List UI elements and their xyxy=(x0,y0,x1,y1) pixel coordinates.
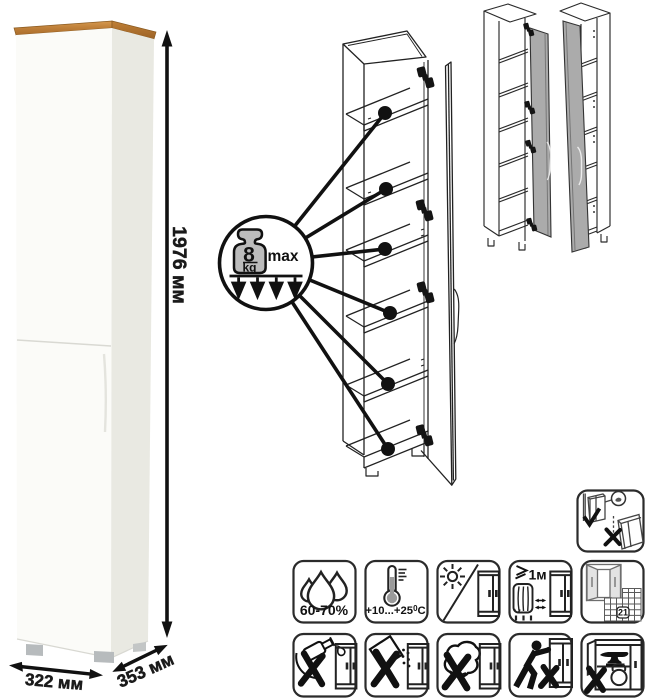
svg-text:21: 21 xyxy=(618,608,628,618)
svg-text:+10...+250C: +10...+250C xyxy=(365,604,425,617)
svg-text:1м: 1м xyxy=(529,567,547,583)
svg-text:max: max xyxy=(267,248,298,265)
svg-text:60-70%: 60-70% xyxy=(300,602,349,618)
svg-text:kg: kg xyxy=(242,261,256,275)
svg-text:322 мм: 322 мм xyxy=(24,670,84,694)
svg-text:1976 мм: 1976 мм xyxy=(168,226,190,304)
